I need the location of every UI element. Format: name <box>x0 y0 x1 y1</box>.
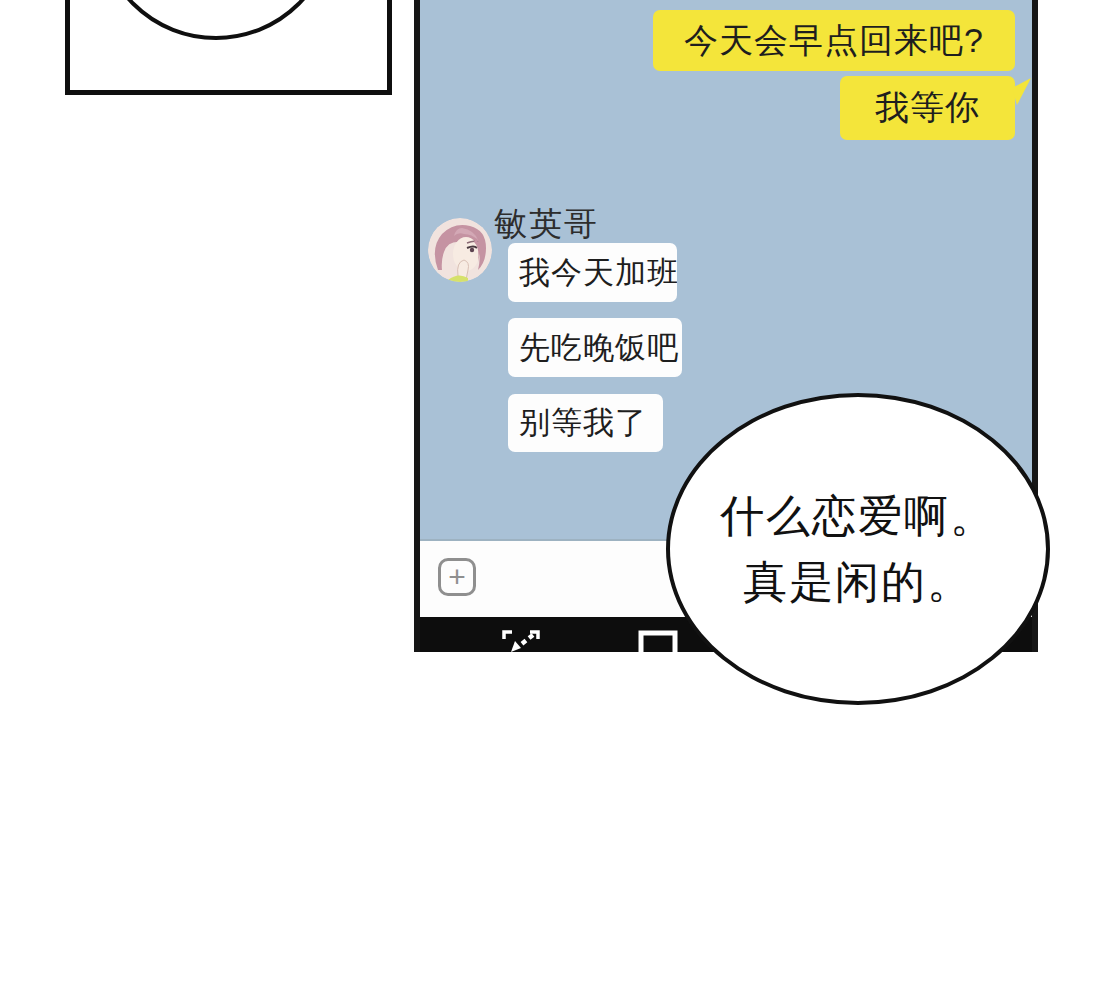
panel-circle-arc <box>70 0 387 90</box>
balloon-text-line: 真是闲的。 <box>743 549 973 615</box>
avatar[interactable] <box>428 218 492 282</box>
avatar-character-icon <box>428 218 492 282</box>
outgoing-message-bubble: 我等你 <box>840 76 1015 140</box>
nav-resize-icon <box>502 630 540 652</box>
nav-window-button[interactable] <box>638 630 678 652</box>
attach-button[interactable]: + <box>438 558 476 596</box>
incoming-message-bubble: 我今天加班 <box>508 243 677 302</box>
plus-icon: + <box>448 562 466 592</box>
incoming-message-bubble: 别等我了 <box>508 394 663 452</box>
comic-panel-partial <box>65 0 392 95</box>
bubble-tail <box>1012 78 1032 106</box>
comic-page: 今天会早点回来吧? 我等你 敏英哥 <box>0 0 1100 999</box>
outgoing-message-bubble: 今天会早点回来吧? <box>653 10 1015 71</box>
incoming-message-bubble: 先吃晚饭吧 <box>508 318 682 377</box>
nav-resize-button[interactable] <box>502 630 540 652</box>
nav-window-icon <box>638 630 678 652</box>
balloon-text-line: 什么恋爱啊。 <box>720 483 996 549</box>
sender-name: 敏英哥 <box>494 202 599 247</box>
speech-balloon: 什么恋爱啊。 真是闲的。 <box>666 393 1050 705</box>
